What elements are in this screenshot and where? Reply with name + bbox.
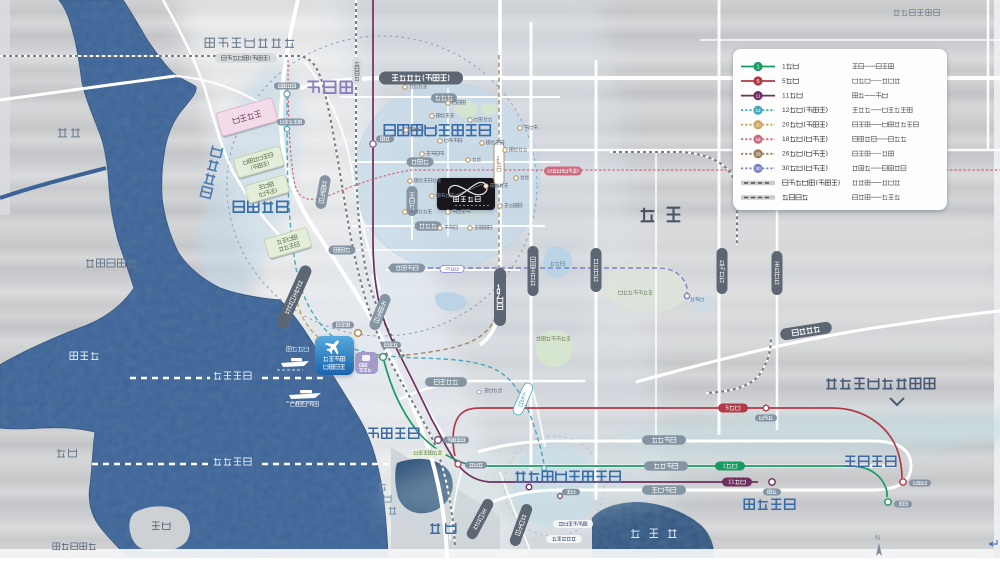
svg-text:1: 1 [731,480,734,486]
svg-text:1: 1 [723,464,726,470]
svg-text:5: 5 [726,406,729,412]
svg-text:11: 11 [756,93,761,98]
svg-text:2: 2 [786,107,790,114]
svg-text:1: 1 [786,92,790,99]
svg-text:0: 0 [786,122,790,129]
svg-text:30: 30 [755,166,761,171]
svg-text:0: 0 [786,165,790,172]
svg-text:8: 8 [786,136,790,143]
svg-text:8: 8 [549,168,552,173]
svg-text:1: 1 [756,64,759,70]
svg-text:5: 5 [782,78,786,85]
svg-text:7: 7 [497,293,501,300]
svg-text:6: 6 [786,151,790,158]
svg-text:6: 6 [497,159,500,165]
svg-text:N: N [875,535,880,542]
svg-text:12: 12 [755,108,761,113]
svg-text:18: 18 [755,137,761,142]
svg-text:5: 5 [756,79,759,85]
svg-text:26: 26 [755,152,761,157]
svg-text:1: 1 [782,63,786,70]
svg-text:20: 20 [755,123,761,128]
